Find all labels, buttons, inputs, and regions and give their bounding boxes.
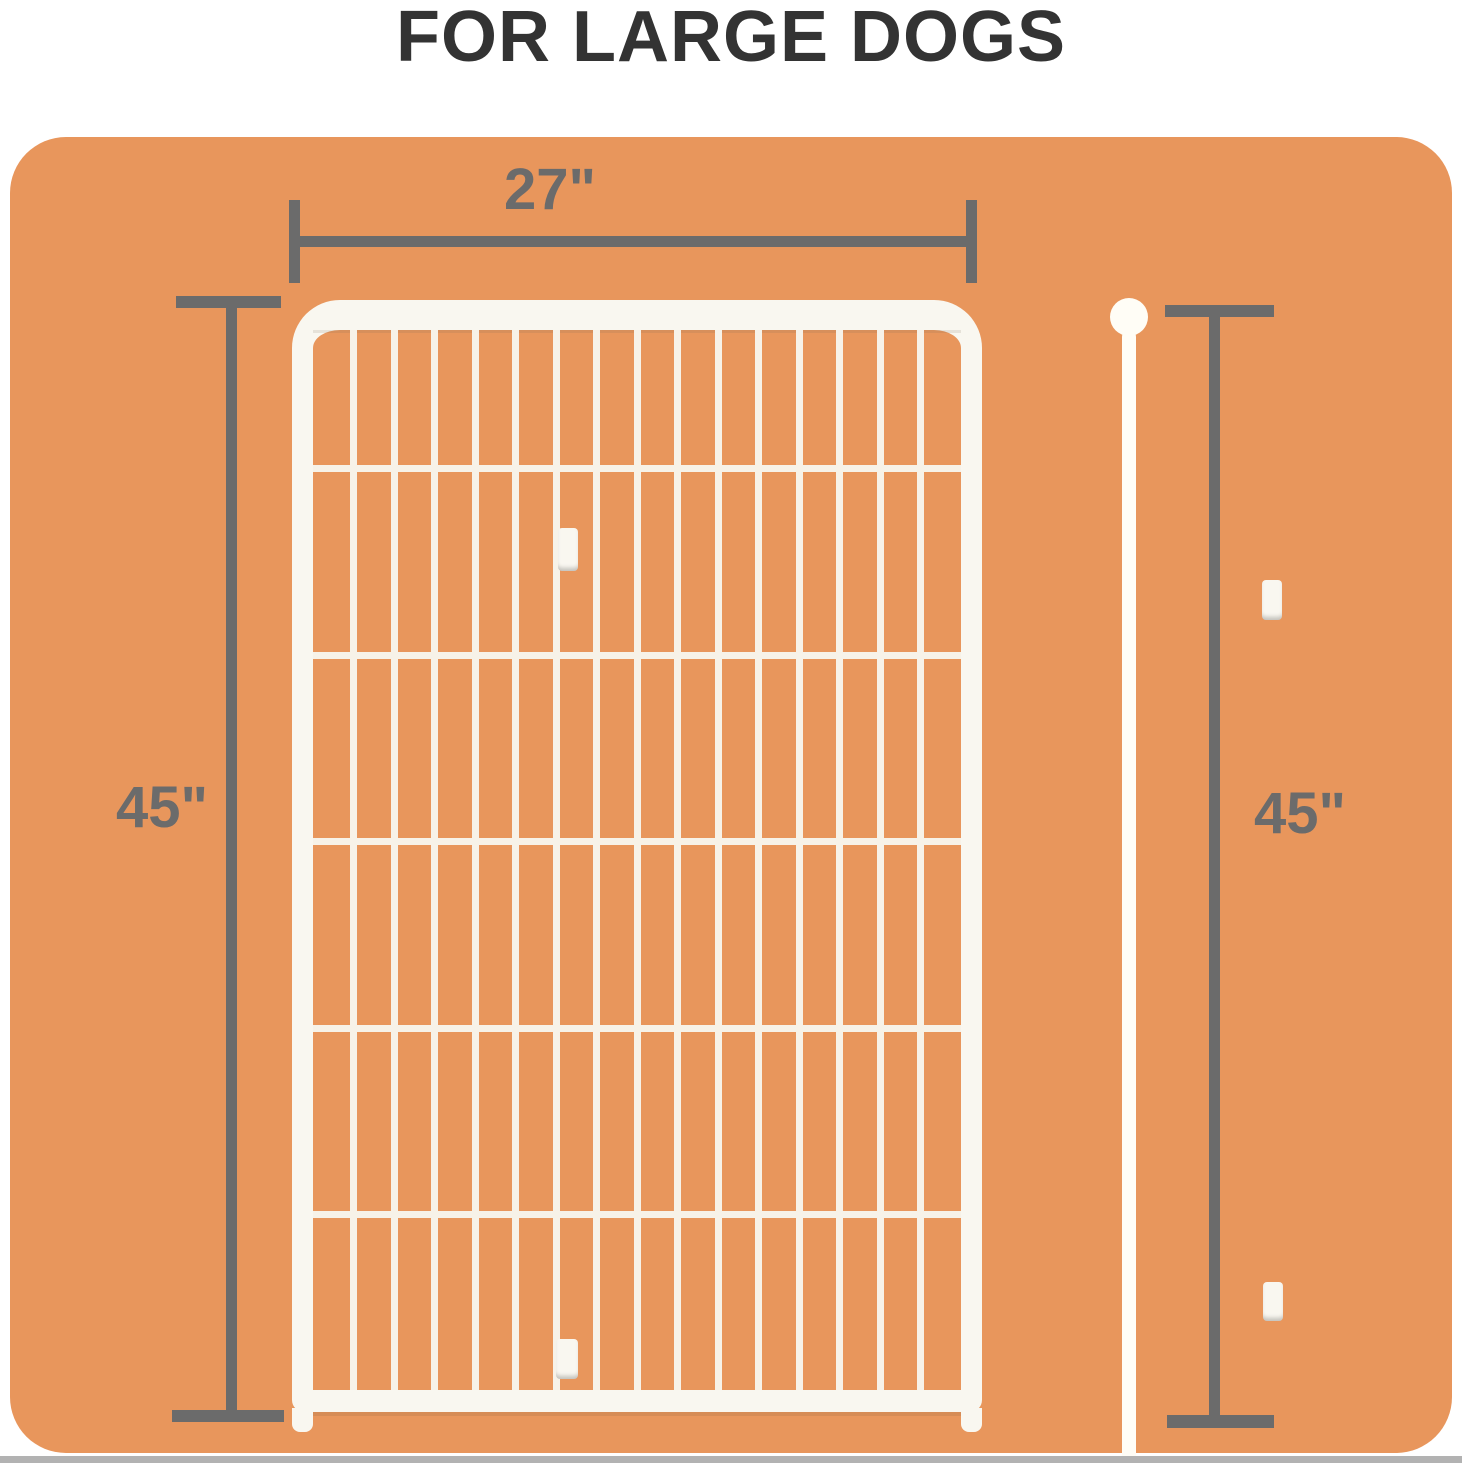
panel-horizontal-rail (313, 652, 961, 659)
connector-tab-lower-left (556, 1339, 578, 1379)
wire-panel (292, 300, 982, 1432)
ground-stake-pole (1122, 330, 1136, 1463)
panel-vertical-bar (472, 330, 479, 1390)
panel-vertical-bar (755, 330, 762, 1390)
panel-vertical-bar (593, 330, 600, 1390)
orange-board: 27" 45" 45" (10, 137, 1452, 1453)
panel-vertical-bar (391, 330, 398, 1390)
left-height-dimension-line (226, 296, 237, 1422)
panel-vertical-bar (796, 330, 803, 1390)
ground-stake-ball-top (1110, 298, 1148, 336)
width-dimension-line (289, 236, 977, 247)
panel-right-foot (961, 1408, 982, 1432)
panel-horizontal-rail (313, 838, 961, 845)
panel-vertical-bar (674, 330, 681, 1390)
panel-vertical-bar (917, 330, 924, 1390)
panel-vertical-bar (350, 330, 357, 1390)
panel-vertical-bar (634, 330, 641, 1390)
left-height-dimension-endcap-bottom (172, 1410, 284, 1422)
panel-vertical-bar (431, 330, 438, 1390)
panel-vertical-bar (877, 330, 884, 1390)
right-height-dimension-label: 45" (1190, 785, 1410, 843)
bottom-edge-strip (0, 1456, 1462, 1463)
panel-left-foot (292, 1408, 313, 1432)
connector-tab-upper-right (1262, 580, 1282, 620)
panel-horizontal-rail (313, 465, 961, 472)
panel-vertical-bar (553, 330, 560, 1390)
left-height-dimension-label: 45" (52, 779, 272, 837)
panel-bottom-rail-shadow (313, 1412, 961, 1416)
panel-horizontal-rail (313, 1025, 961, 1032)
connector-tab-lower-right (1263, 1282, 1283, 1321)
page-title: FOR LARGE DOGS (0, 0, 1462, 78)
width-dimension-label: 27" (360, 161, 740, 219)
panel-vertical-bar (836, 330, 843, 1390)
right-height-dimension-line (1209, 305, 1220, 1428)
right-height-dimension-endcap-bottom (1167, 1415, 1274, 1428)
connector-tab-upper-left (558, 528, 578, 571)
panel-vertical-bar (715, 330, 722, 1390)
panel-grid (313, 330, 961, 1390)
infographic-stage: FOR LARGE DOGS 27" 45" 45" (0, 0, 1462, 1463)
panel-horizontal-rail (313, 1211, 961, 1218)
panel-vertical-bar (512, 330, 519, 1390)
